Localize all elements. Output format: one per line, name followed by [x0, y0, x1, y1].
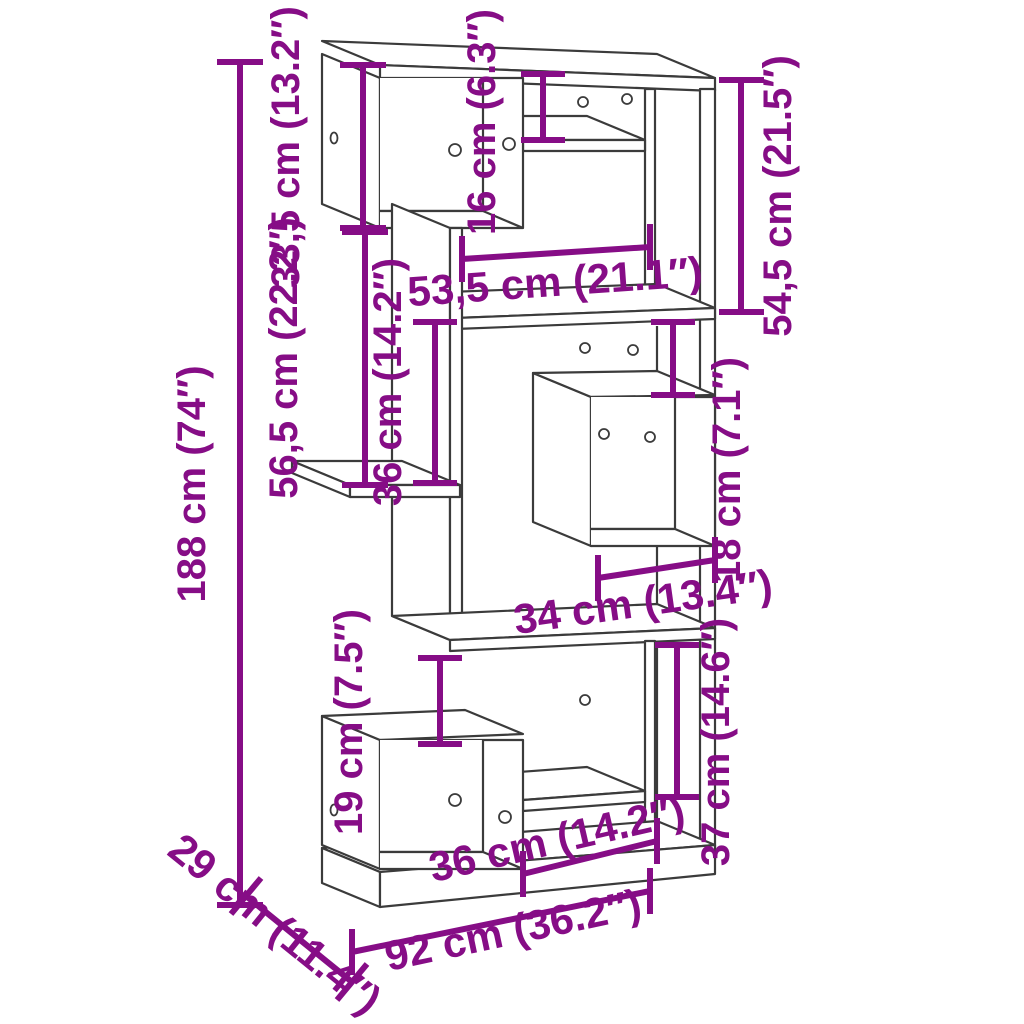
diagram-canvas: 188 cm (74″) 33,5 cm (13.2″) 16 cm (6.3″…: [0, 0, 1024, 1024]
cam-hole: [622, 94, 632, 104]
dimension-label-gap-above-bottom-box: 19 cm (7.5″): [327, 609, 371, 835]
side-hole: [331, 133, 338, 144]
dimension-label-upper-right-height: 54,5 cm (21.5″): [756, 55, 800, 337]
cam-hole: [499, 811, 511, 823]
dimension-label-total-height: 188 cm (74″): [170, 365, 214, 602]
furniture-dimension-diagram: 188 cm (74″) 33,5 cm (13.2″) 16 cm (6.3″…: [0, 0, 1024, 1024]
dimension-label-lower-right-height: 37 cm (14.6″): [694, 618, 738, 866]
cam-hole: [645, 432, 655, 442]
cam-hole: [580, 695, 590, 705]
cam-hole: [449, 794, 461, 806]
cam-hole: [503, 138, 515, 150]
dimension-label-gap-above-cube: 18 cm (7.1″): [705, 357, 749, 583]
cube-left-face: [533, 373, 591, 546]
cam-hole: [628, 345, 638, 355]
dimension-label-mid-left-height: 56,5 cm (22.2″): [262, 217, 306, 499]
cam-hole: [599, 429, 609, 439]
cam-hole: [580, 343, 590, 353]
cam-hole: [578, 97, 588, 107]
dimension-label-top-shelf-height: 16 cm (6.3″): [460, 9, 504, 235]
dimension-label-mid-opening-height: 36 cm (14.2″): [366, 258, 410, 506]
